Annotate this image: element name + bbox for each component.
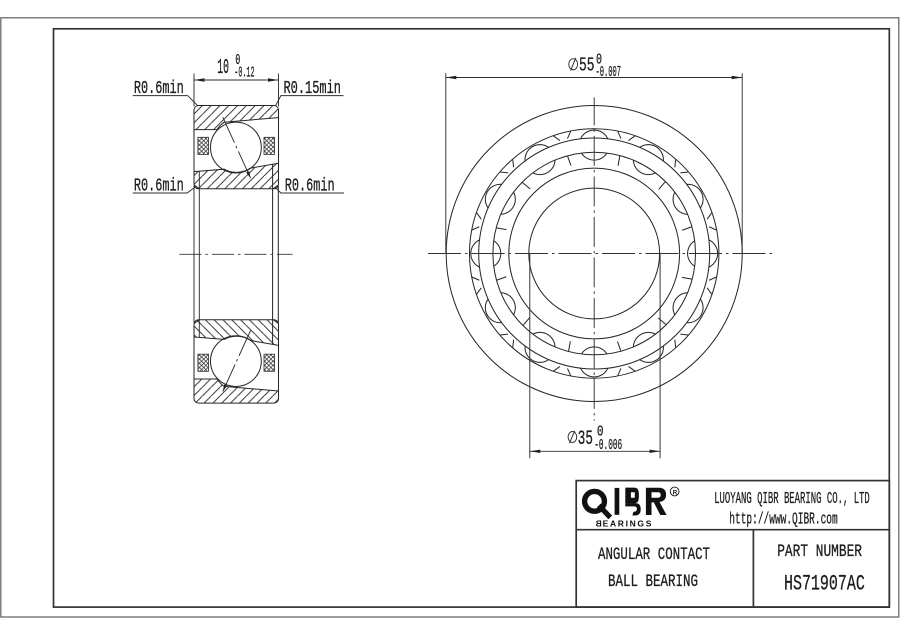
svg-text:B: B — [596, 519, 602, 529]
svg-text:R: R — [673, 489, 678, 496]
svg-text:LUOYANG QIBR BEARING CO., LTD: LUOYANG QIBR BEARING CO., LTD — [714, 490, 870, 509]
svg-text:http://www.QIBR.com: http://www.QIBR.com — [729, 511, 837, 530]
svg-text:-0.006: -0.006 — [594, 437, 622, 454]
svg-text:BALL BEARING: BALL BEARING — [608, 572, 698, 592]
svg-text:ANGULAR CONTACT: ANGULAR CONTACT — [598, 545, 710, 565]
svg-text:HS71907AC: HS71907AC — [784, 571, 865, 597]
svg-text:10: 10 — [217, 57, 229, 80]
svg-text:55: 55 — [579, 55, 595, 77]
svg-text:EARINGS: EARINGS — [603, 519, 653, 529]
svg-text:-0.12: -0.12 — [234, 65, 254, 82]
svg-text:-0.007: -0.007 — [596, 64, 622, 81]
svg-text:35: 35 — [578, 428, 593, 451]
svg-text:PART NUMBER: PART NUMBER — [777, 542, 862, 562]
